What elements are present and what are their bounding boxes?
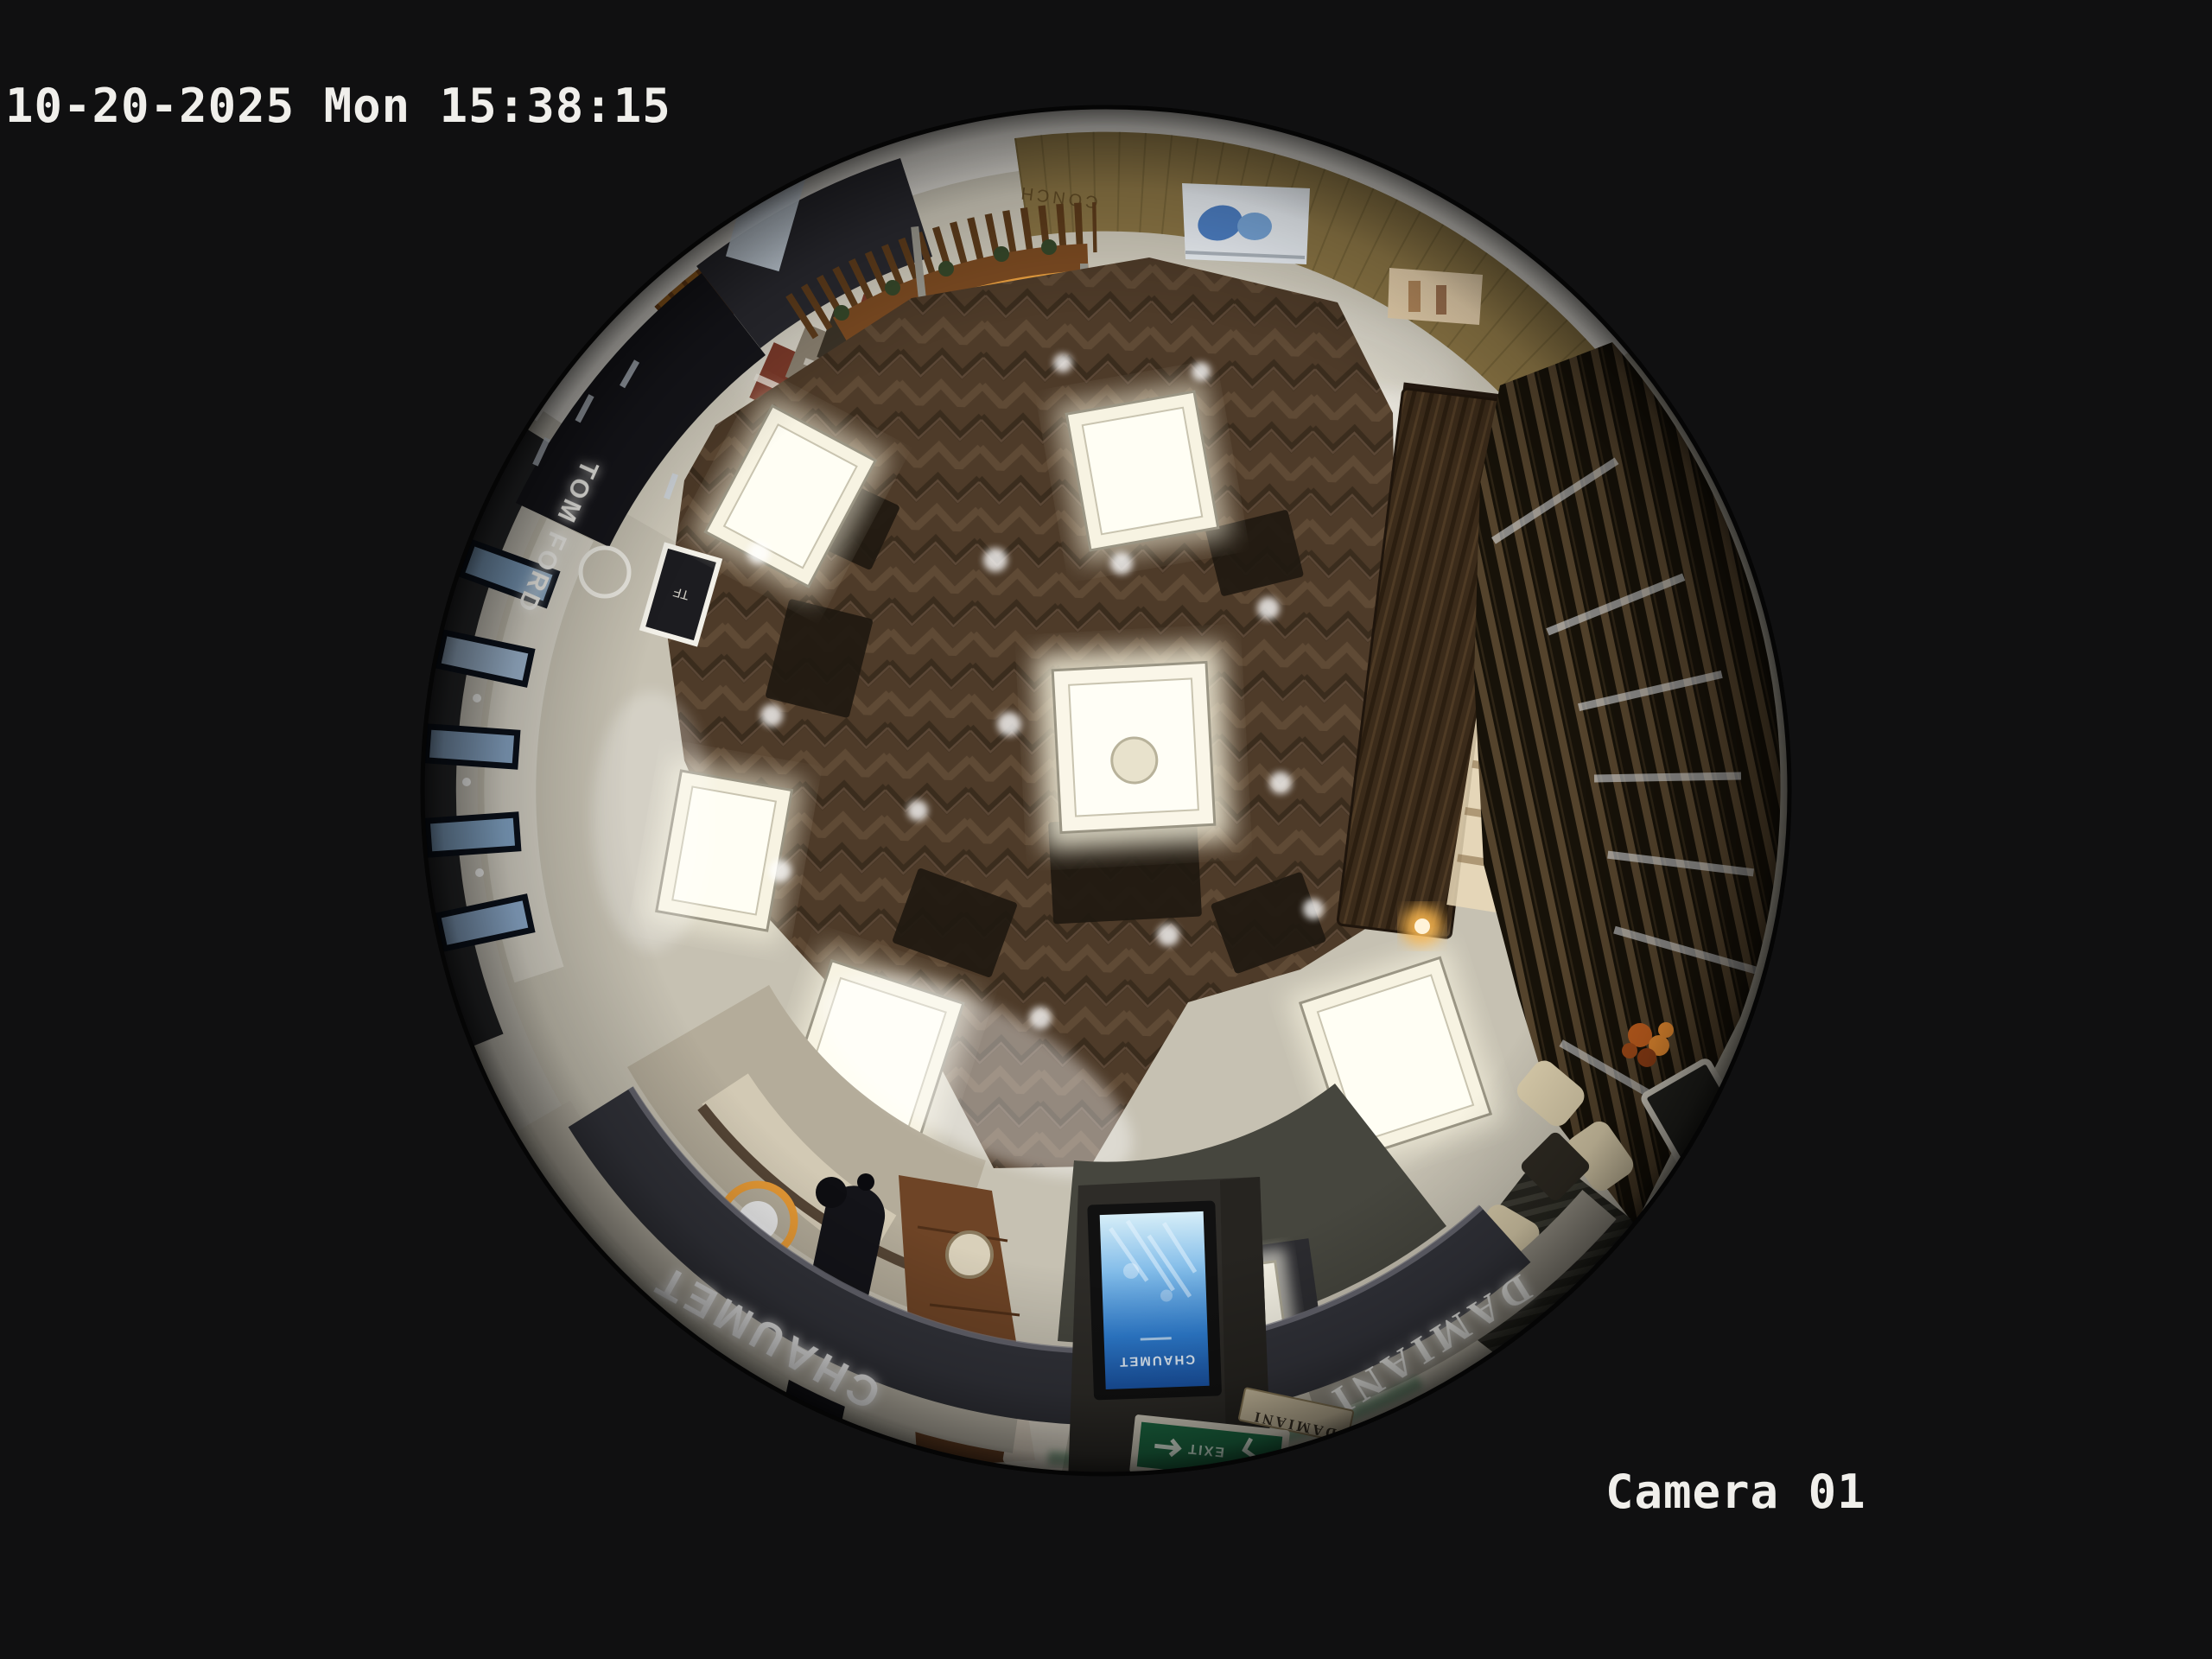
osd-camera-label: Camera 01 — [1605, 1469, 1866, 1516]
fisheye-camera-view: CONCH — [0, 0, 2212, 1659]
lens-vignette — [422, 106, 1790, 1475]
osd-timestamp: 10-20-2025 Mon 15:38:15 — [5, 83, 671, 130]
cctv-monitor-frame: { "osd": { "timestamp": "10-20-2025 Mon … — [0, 0, 2212, 1659]
